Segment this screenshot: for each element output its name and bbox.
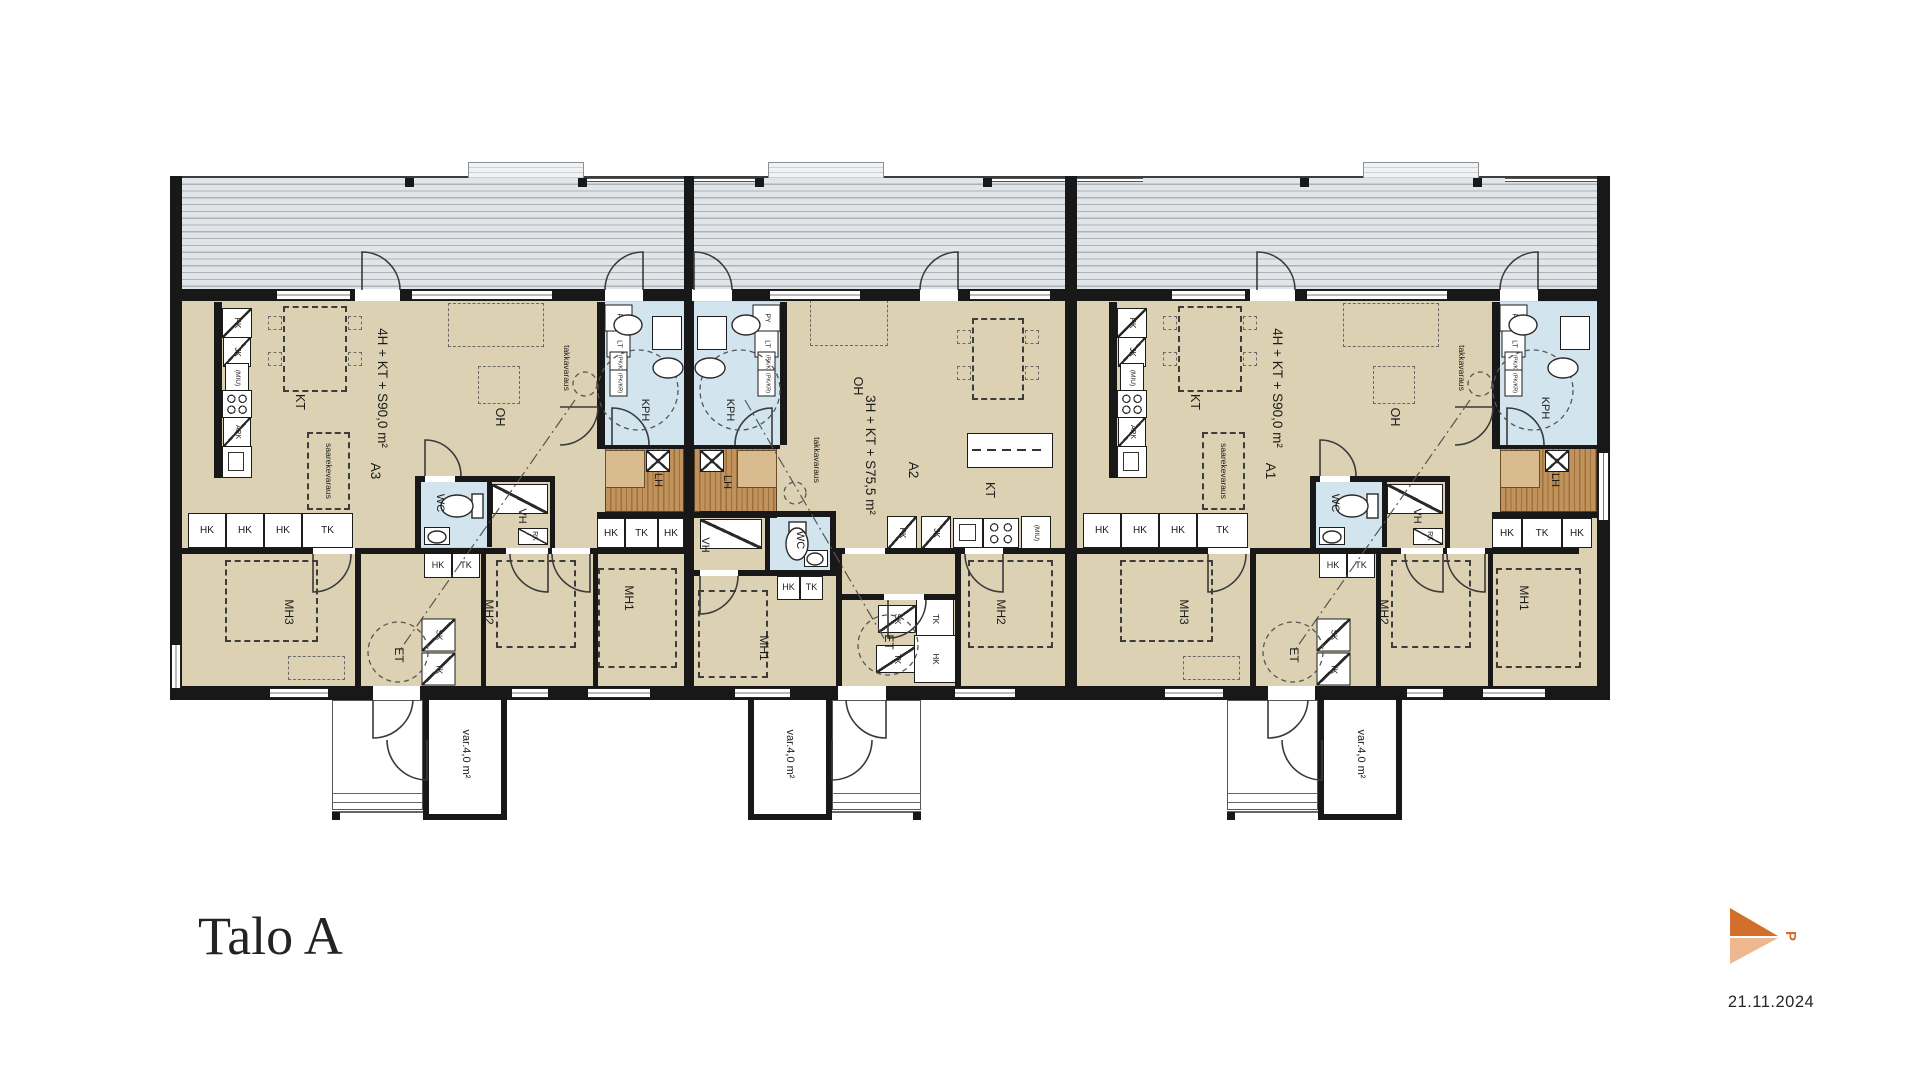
a1-note-saarekevaraus: saarekevaraus [1183, 431, 1263, 511]
a2-closet-tk: TK [800, 576, 823, 600]
a1-closet-tk: TK [1197, 513, 1248, 548]
north-arrow-lower [1730, 938, 1778, 964]
a1-closet-hk: HK [1083, 513, 1121, 548]
a3-closet-hk: HK [597, 518, 625, 548]
a2-unit-id: A2 [883, 440, 943, 500]
a1-room-label-mh1: MH1 [1493, 568, 1553, 628]
a1-door-gap [1208, 548, 1250, 554]
terrace-band [182, 176, 1597, 292]
terrace-screen-rail [582, 178, 762, 182]
a2-wall [694, 445, 780, 449]
a3-porch-post [332, 812, 340, 820]
a1-storage-area: 4,0 m² [1354, 747, 1368, 778]
a1-wall [1077, 548, 1579, 554]
a1-room-label-mh3: MH3 [1153, 582, 1213, 642]
a1-type: 4H + KT + S [1268, 328, 1286, 402]
a2-entry-door-gap [838, 686, 886, 700]
a2-washer: PY [753, 305, 781, 332]
a2-terrace-door-gap [692, 289, 732, 301]
floor-plan-sheet: PK JK (MIU) APK PY LT (PK/KR) (PK/KR) HK… [0, 0, 1920, 1080]
terrace-post [405, 178, 414, 187]
a2-room-label-lh: LH [697, 452, 757, 512]
a1-terrace-door-gap [1250, 289, 1295, 301]
a2-chair [1025, 366, 1039, 380]
a3-sink-basin [228, 452, 244, 471]
a2-wall [955, 554, 961, 686]
a3-chair [268, 316, 282, 330]
a1-porch-post [1227, 812, 1235, 820]
a3-terrace-door-gap [355, 289, 400, 301]
a2-closet-hk: HK [777, 576, 800, 600]
a2-oven [953, 518, 983, 548]
a2-wall [836, 554, 842, 686]
a2-door-gap [845, 548, 885, 554]
a3-entry-door-gap [373, 686, 420, 700]
a2-room-label-vh: VH [675, 515, 735, 575]
a3-freezer: PK [222, 308, 252, 338]
a3-side-window [171, 645, 181, 688]
a1-door-gap [1447, 548, 1485, 554]
a2-freezer: PK [887, 516, 917, 550]
a3-dishwasher: APK [223, 417, 251, 447]
a1-window [1307, 290, 1447, 300]
a1-unit-info: 4H + KT + S 90,0 m² [1217, 328, 1337, 448]
a1-sink [1117, 446, 1147, 478]
a1-closet-hk: HK [1562, 518, 1592, 548]
a1-closet-hk: HK [1319, 553, 1347, 578]
a1-closet-hk: HK [1492, 518, 1522, 548]
a1-dishwasher: APK [1118, 417, 1146, 447]
a3-storage-area: 4,0 m² [459, 747, 473, 778]
a2-note-takkavaraus: takkavaraus [776, 420, 856, 500]
a1-porch-deck [1227, 785, 1318, 813]
a3-room-label-kt: KT [270, 372, 330, 432]
a1-kitchen-wall [1109, 302, 1117, 478]
a2-room-label-kph: KPH [700, 380, 760, 440]
a3-sink [222, 446, 252, 478]
a2-sofa [810, 300, 888, 346]
a3-unit-info: 4H + KT + S 90,0 m² [322, 328, 442, 448]
a1-label-rk: RK [1414, 521, 1444, 551]
a2-closet-hk: HK [914, 635, 956, 683]
a1-room-label-oh: OH [1365, 387, 1425, 447]
a1-sauna-window [1598, 453, 1609, 520]
a3-room-label-mh2: MH2 [458, 582, 518, 642]
a3-closet-tk: TK [452, 553, 480, 578]
a3-porch-deck [332, 785, 423, 813]
a1-terrace-door-gap [1500, 289, 1538, 301]
a1-closet-hk: HK [1121, 513, 1159, 548]
a2-chair [957, 330, 971, 344]
a3-type: 4H + KT + S [373, 328, 391, 402]
a3-closet-hk: HK [188, 513, 226, 548]
a2-microwave: (MIU) [1021, 516, 1051, 550]
a2-dining-table [972, 318, 1024, 400]
a1-room-label-kt: KT [1165, 372, 1225, 432]
a3-dresser-mh3 [288, 656, 345, 680]
a1-wall [1492, 512, 1597, 518]
a1-washer: PY [1500, 305, 1528, 332]
canopy-a2 [768, 162, 884, 178]
terrace-screen-rail [1505, 178, 1597, 182]
page-title: Talo A [198, 905, 418, 967]
a2-chair [1025, 330, 1039, 344]
a3-room-label-et: ET [368, 625, 428, 685]
a1-room-label-et: ET [1263, 625, 1323, 685]
a3-room-label-mh3: MH3 [258, 582, 318, 642]
north-label: P [1776, 922, 1804, 950]
a3-closet-hk: HK [424, 553, 452, 578]
a3-window [512, 688, 548, 698]
a2-porch-post [913, 812, 921, 820]
a3-wall [355, 554, 361, 686]
a2-storage-label: var. 4,0 m² [760, 724, 820, 784]
a2-washer-reservation: (PK/KR) [758, 370, 776, 397]
a1-note-takkavaraus: takkavaraus [1421, 328, 1501, 408]
a1-chair [1163, 316, 1177, 330]
a1-microwave: (MIU) [1120, 363, 1144, 393]
canopy-a1 [1363, 162, 1479, 178]
a1-closet-tk: TK [1347, 553, 1375, 578]
a2-island-centerline [972, 449, 1047, 451]
a2-room-label-oh: OH [828, 356, 888, 416]
terrace-post [755, 178, 764, 187]
a1-sink-basin [1123, 452, 1139, 471]
a2-door-gap [884, 594, 924, 600]
a3-chair [268, 352, 282, 366]
date-stamp: 21.11.2024 [1726, 992, 1816, 1014]
a3-room-label-mh1: MH1 [598, 568, 658, 628]
terrace-post [578, 178, 587, 187]
a1-closet-tk: TK [1522, 518, 1562, 548]
a3-label-rk: RK [519, 521, 549, 551]
a2-terrace-door-gap [920, 289, 958, 301]
a2-window [735, 688, 790, 698]
a1-storage-label: var. 4,0 m² [1331, 724, 1391, 784]
a3-wall [597, 445, 684, 449]
a3-door-gap [552, 548, 590, 554]
a1-room-label-mh2: MH2 [1353, 582, 1413, 642]
terrace-post [983, 178, 992, 187]
a1-window [1407, 688, 1443, 698]
a2-room-label-kt: KT [960, 460, 1020, 520]
a3-wall [182, 548, 684, 554]
a3-microwave: (MIU) [225, 363, 249, 393]
a2-hob [983, 518, 1019, 548]
a3-kitchen-wall [214, 302, 222, 478]
a1-window [1172, 290, 1245, 300]
a3-room-label-oh: OH [470, 387, 530, 447]
a3-window [588, 688, 650, 698]
a1-storage-var: var. [1354, 730, 1368, 748]
terrace-post [1300, 178, 1309, 187]
a1-room-label-kph: KPH [1515, 378, 1575, 438]
a2-room-label-et: ET [858, 612, 918, 672]
a2-window [770, 290, 860, 300]
a2-fridge: JK [921, 516, 951, 550]
a3-storage-var: var. [459, 730, 473, 748]
a2-room-label-mh2: MH2 [970, 582, 1030, 642]
a1-wall [1250, 554, 1256, 686]
a3-window [277, 290, 350, 300]
a2-room-label-mh1: MH1 [733, 618, 793, 678]
north-arrow-upper [1730, 908, 1778, 936]
a1-window [1483, 688, 1545, 698]
a1-freezer: PK [1117, 308, 1147, 338]
a1-room-label-lh: LH [1525, 450, 1585, 510]
party-wall-a2-a1 [1065, 176, 1077, 700]
a3-note-takkavaraus: takkavaraus [526, 328, 606, 408]
north-arrow [1730, 908, 1778, 964]
a3-terrace-door-gap [605, 289, 643, 301]
a1-closet-hk: HK [1159, 513, 1197, 548]
party-wall-a3-a2 [684, 176, 694, 700]
a2-vanity [697, 316, 727, 350]
a2-chair [957, 366, 971, 380]
a2-room-label-wc: WC [770, 510, 830, 570]
a1-room-label-wc: WC [1305, 473, 1365, 533]
a3-window [270, 688, 328, 698]
a1-dresser-mh3 [1183, 656, 1240, 680]
a2-storage-var: var. [783, 730, 797, 748]
terrace-post [1473, 178, 1482, 187]
a3-vanity [652, 316, 682, 350]
a1-vanity [1560, 316, 1590, 350]
a3-closet-tk: TK [302, 513, 353, 548]
a3-note-saarekevaraus: saarekevaraus [288, 431, 368, 511]
a3-room-label-lh: LH [628, 450, 688, 510]
a3-room-label-wc: WC [410, 473, 470, 533]
a3-closet-hk: HK [264, 513, 302, 548]
a1-entry-door-gap [1268, 686, 1315, 700]
exterior-wall-left [170, 176, 182, 700]
canopy-a3 [468, 162, 584, 178]
a2-window [970, 290, 1050, 300]
a3-storage-label: var. 4,0 m² [436, 724, 496, 784]
a3-room-label-kph: KPH [615, 380, 675, 440]
a3-washer: PY [605, 305, 633, 332]
a3-closet-hk: HK [226, 513, 264, 548]
a1-wall [1492, 445, 1597, 449]
a3-door-gap [313, 548, 355, 554]
a2-area: 75,5 m² [861, 469, 879, 515]
exterior-wall-right [1597, 176, 1610, 700]
a1-chair [1163, 352, 1177, 366]
a1-hob [1117, 390, 1147, 418]
a2-storage-area: 4,0 m² [783, 747, 797, 778]
a3-wall [597, 512, 684, 518]
a2-door-gap [965, 548, 1003, 554]
a3-closet-tk: TK [625, 518, 658, 548]
a3-hob [222, 390, 252, 418]
a3-window [412, 290, 552, 300]
a2-oven-door [959, 524, 976, 541]
a1-window [1165, 688, 1223, 698]
a2-porch-deck [832, 785, 921, 813]
a2-window [955, 688, 1015, 698]
